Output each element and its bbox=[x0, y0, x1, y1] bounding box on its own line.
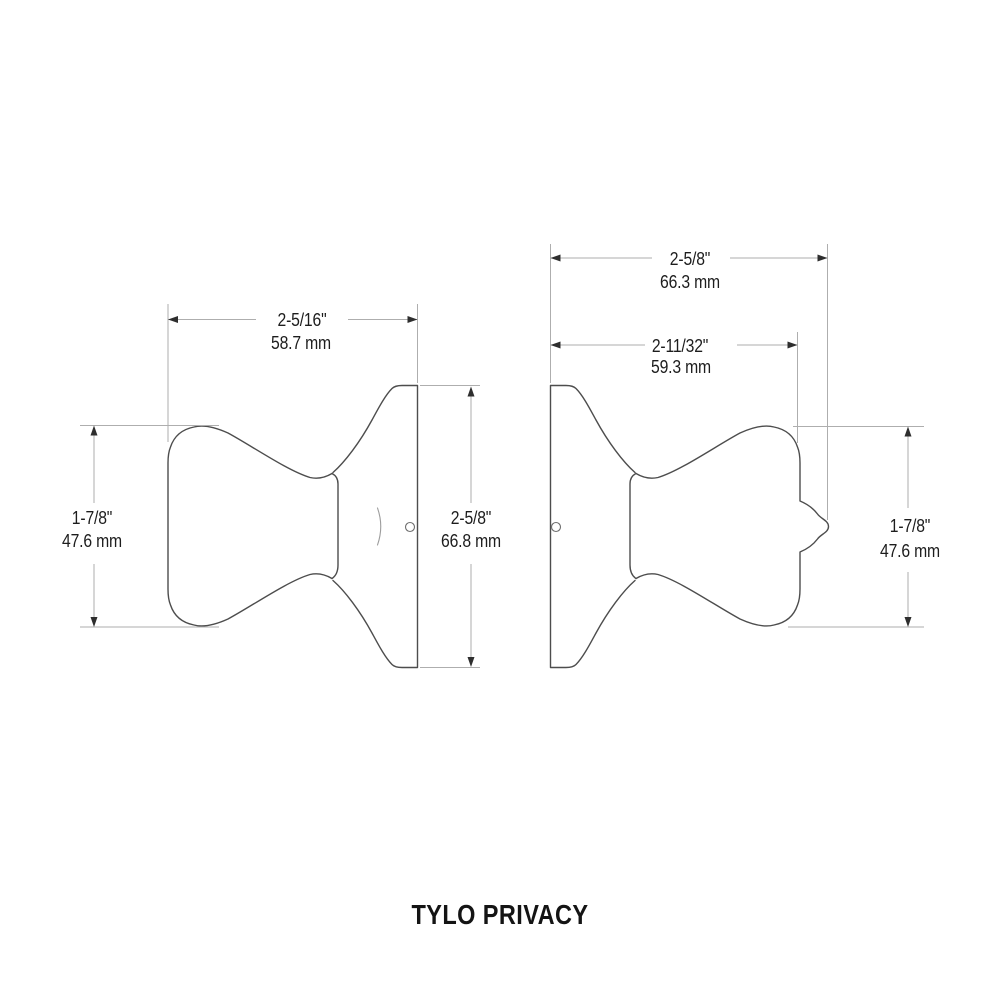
dim-left-knob-height-inches: 1-7/8" bbox=[72, 507, 112, 529]
dim-left-width: 2-5/16" 58.7 mm bbox=[168, 304, 418, 442]
arrow-up-icon bbox=[91, 426, 98, 436]
dim-left-width-inches: 2-5/16" bbox=[278, 309, 327, 331]
dim-right-overall-depth: 2-5/8" 66.3 mm bbox=[551, 244, 828, 520]
arrow-left-icon bbox=[551, 342, 561, 349]
arrow-right-icon bbox=[408, 316, 418, 323]
right-knob-head-outline bbox=[636, 426, 829, 626]
left-knob-flange-highlight-arc bbox=[378, 508, 381, 545]
dim-right-knob-height: 1-7/8" 47.6 mm bbox=[788, 427, 940, 628]
right-knob-view bbox=[551, 386, 829, 668]
arrow-left-icon bbox=[168, 316, 178, 323]
dim-left-rose-height-mm: 66.8 mm bbox=[441, 530, 501, 552]
dim-right-overall-depth-inches: 2-5/8" bbox=[670, 248, 710, 270]
dim-right-overall-depth-mm: 66.3 mm bbox=[660, 271, 720, 293]
dim-left-knob-height-mm: 47.6 mm bbox=[62, 530, 122, 552]
diagram-canvas: 2-5/16" 58.7 mm 1-7/8" 47.6 mm bbox=[0, 0, 1000, 1000]
dim-right-knob-depth-inches: 2-11/32" bbox=[652, 335, 708, 357]
arrow-right-icon bbox=[818, 255, 828, 262]
left-knob-view bbox=[168, 386, 418, 668]
dim-right-knob-height-inches: 1-7/8" bbox=[890, 515, 930, 537]
arrow-down-icon bbox=[905, 617, 912, 627]
knob-spec-drawing: 2-5/16" 58.7 mm 1-7/8" 47.6 mm bbox=[0, 0, 1000, 1000]
right-knob-shank-rim bbox=[630, 474, 636, 579]
left-knob-head-outline bbox=[168, 426, 332, 626]
arrow-up-icon bbox=[468, 387, 475, 397]
dimension-annotations: 2-5/16" 58.7 mm 1-7/8" 47.6 mm bbox=[62, 244, 940, 668]
right-knob-rose-plate-outline bbox=[551, 386, 636, 668]
left-knob-shank-rim bbox=[332, 474, 338, 579]
dim-right-knob-height-mm: 47.6 mm bbox=[880, 540, 940, 562]
dim-left-rose-height: 2-5/8" 66.8 mm bbox=[420, 386, 501, 668]
arrow-right-icon bbox=[788, 342, 798, 349]
dim-left-width-mm: 58.7 mm bbox=[271, 332, 331, 354]
left-rose-screw-hole bbox=[406, 523, 415, 532]
arrow-down-icon bbox=[468, 657, 475, 667]
dim-left-rose-height-inches: 2-5/8" bbox=[451, 507, 491, 529]
right-rose-screw-hole bbox=[552, 523, 561, 532]
product-title: TYLO PRIVACY bbox=[80, 901, 920, 929]
arrow-down-icon bbox=[91, 617, 98, 627]
arrow-left-icon bbox=[551, 255, 561, 262]
left-knob-rose-plate-outline bbox=[333, 386, 418, 668]
dim-left-knob-height: 1-7/8" 47.6 mm bbox=[62, 426, 219, 628]
arrow-up-icon bbox=[905, 427, 912, 437]
dim-right-knob-depth-mm: 59.3 mm bbox=[651, 356, 711, 378]
